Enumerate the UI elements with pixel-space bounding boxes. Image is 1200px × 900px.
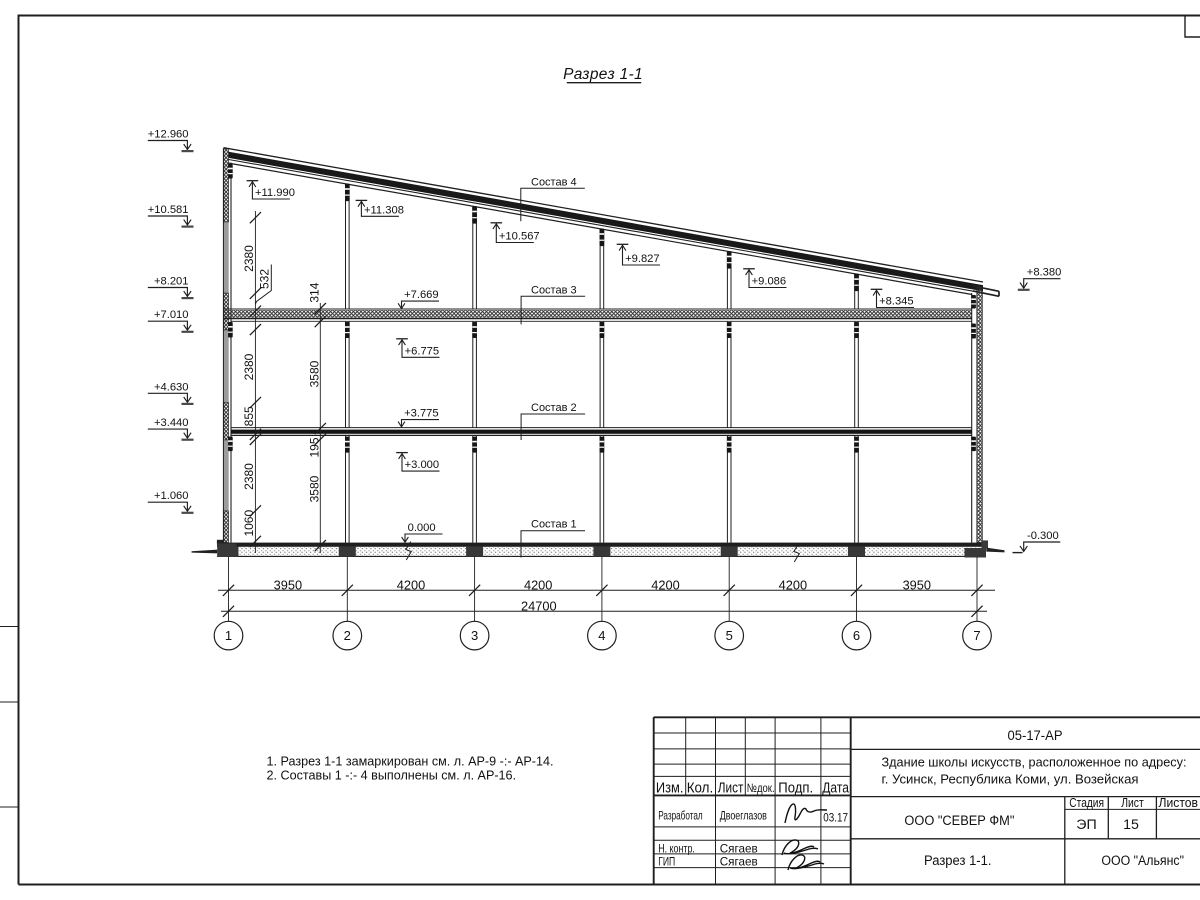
svg-text:Разрез 1-1.: Разрез 1-1.: [924, 853, 992, 869]
svg-text:7: 7: [973, 628, 980, 643]
svg-text:Разработал: Разработал: [658, 809, 703, 823]
svg-text:Лист: Лист: [1121, 795, 1144, 810]
svg-text:+11.990: +11.990: [255, 187, 295, 199]
svg-text:3950: 3950: [274, 577, 302, 592]
svg-text:3580: 3580: [307, 475, 321, 502]
svg-text:Стадия: Стадия: [1069, 795, 1104, 810]
svg-text:+9.827: +9.827: [625, 253, 660, 265]
svg-text:3580: 3580: [307, 360, 321, 387]
svg-text:855: 855: [242, 406, 256, 426]
svg-text:ЭП: ЭП: [1076, 817, 1096, 833]
svg-text:2380: 2380: [242, 463, 256, 490]
svg-text:Н. контр.: Н. контр.: [658, 841, 695, 855]
svg-text:Дата: Дата: [822, 780, 849, 797]
svg-text:195: 195: [307, 437, 321, 457]
svg-text:+6.775: +6.775: [405, 345, 440, 357]
svg-text:2: 2: [344, 628, 351, 643]
svg-text:4200: 4200: [397, 577, 425, 592]
svg-text:Состав 4: Состав 4: [531, 177, 577, 189]
svg-text:1: 1: [225, 628, 232, 643]
svg-text:5: 5: [726, 628, 733, 643]
svg-text:2380: 2380: [242, 353, 256, 380]
svg-text:05-17-АР: 05-17-АР: [1008, 728, 1063, 744]
svg-text:4200: 4200: [779, 577, 807, 592]
svg-text:1. Разрез 1-1 замаркирован см.: 1. Разрез 1-1 замаркирован см. л. АР-9 -…: [267, 755, 554, 769]
svg-text:314: 314: [307, 282, 321, 302]
svg-text:2. Составы 1 -:- 4 выполнены с: 2. Составы 1 -:- 4 выполнены см. л. АР-1…: [267, 769, 517, 783]
svg-text:ООО "СЕВЕР ФМ": ООО "СЕВЕР ФМ": [904, 813, 1014, 829]
svg-text:+12.960: +12.960: [148, 129, 189, 141]
svg-text:Состав 3: Состав 3: [531, 284, 577, 296]
svg-text:+7.669: +7.669: [404, 289, 439, 301]
svg-text:Кол.: Кол.: [687, 780, 714, 797]
svg-text:ООО "Альянс": ООО "Альянс": [1101, 853, 1184, 869]
svg-text:+7.010: +7.010: [154, 309, 189, 321]
svg-text:-0.300: -0.300: [1027, 530, 1059, 542]
svg-text:+1.060: +1.060: [154, 490, 189, 502]
svg-text:Состав 1: Состав 1: [531, 518, 577, 530]
svg-text:+3.000: +3.000: [405, 459, 440, 471]
svg-text:03.17: 03.17: [823, 810, 848, 824]
svg-text:+4.630: +4.630: [154, 381, 189, 393]
svg-text:4200: 4200: [524, 577, 552, 592]
svg-text:Сягаев: Сягаев: [720, 854, 758, 868]
svg-text:Состав 2: Состав 2: [531, 402, 577, 414]
svg-text:Листов: Листов: [1159, 795, 1199, 810]
svg-text:+10.567: +10.567: [499, 231, 540, 243]
svg-text:+8.345: +8.345: [879, 296, 914, 308]
svg-text:+3.440: +3.440: [154, 417, 189, 429]
svg-text:+11.308: +11.308: [364, 204, 404, 216]
svg-text:Подп.: Подп.: [778, 780, 813, 797]
svg-text:0.000: 0.000: [408, 522, 436, 534]
svg-text:№док.: №док.: [747, 781, 775, 795]
svg-text:Здание школы искусств, располо: Здание школы искусств, расположенное по …: [882, 755, 1187, 770]
svg-text:г. Усинск, Республика Коми, ул: г. Усинск, Республика Коми, ул. Возейска…: [882, 772, 1139, 787]
svg-text:3: 3: [471, 628, 478, 643]
svg-text:Разрез 1-1: Разрез 1-1: [563, 66, 643, 83]
svg-text:Сягаев: Сягаев: [720, 841, 758, 855]
svg-text:532: 532: [258, 269, 272, 289]
svg-text:+8.380: +8.380: [1027, 267, 1062, 279]
svg-text:3950: 3950: [903, 577, 931, 592]
svg-text:Изм.: Изм.: [656, 780, 684, 797]
svg-text:2380: 2380: [242, 245, 256, 272]
svg-text:6: 6: [853, 628, 860, 643]
svg-text:+9.086: +9.086: [752, 276, 787, 288]
svg-text:+8.201: +8.201: [154, 276, 189, 288]
svg-text:1060: 1060: [242, 510, 256, 537]
svg-text:Двоеглазов: Двоеглазов: [720, 809, 767, 823]
svg-text:4: 4: [598, 628, 605, 643]
svg-text:Лист: Лист: [718, 780, 744, 797]
svg-text:+3.775: +3.775: [404, 408, 439, 420]
svg-text:4200: 4200: [651, 577, 679, 592]
svg-text:15: 15: [1123, 817, 1139, 833]
svg-text:ГИП: ГИП: [658, 854, 675, 868]
svg-text:24700: 24700: [521, 598, 557, 613]
svg-text:+10.581: +10.581: [148, 204, 189, 216]
